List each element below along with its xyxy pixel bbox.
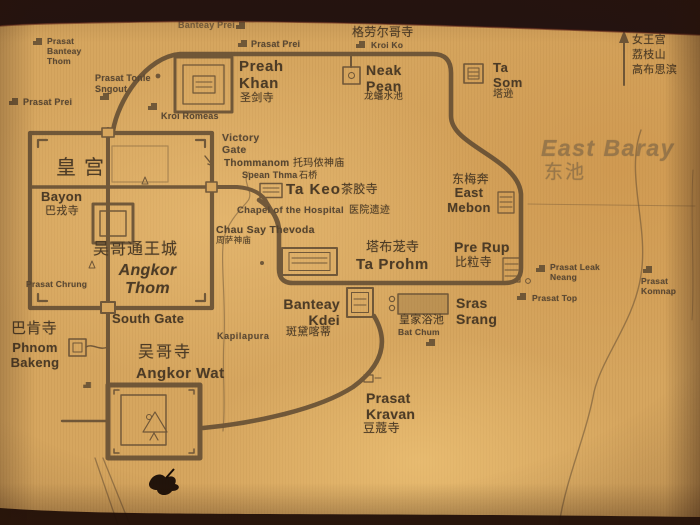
moat-tick-ne [189, 390, 194, 394]
site-icon [9, 98, 18, 105]
neak-pean-icon [343, 67, 360, 84]
label-direction-banteay-srei: 女王宫 [632, 34, 666, 46]
label-preah-khan-en: Preah Khan [239, 59, 284, 93]
site-icon [238, 40, 247, 47]
river-east [559, 130, 643, 525]
site-icon [33, 38, 42, 45]
dot-leak-neang [526, 279, 531, 284]
label-chapel-zh: 医院遗迹 [349, 205, 390, 216]
label-prasat-top: Prasat Top [532, 293, 577, 303]
banteay-kdei-lines [354, 299, 366, 305]
label-thommanom-en: Thommanom [224, 158, 289, 169]
label-ta-som-en: Ta Som [493, 61, 523, 90]
label-spean-thma-en: Spean Thma [242, 170, 298, 181]
phnom-bakeng-inner [73, 343, 82, 352]
label-pre-rup-en: Pre Rup [454, 240, 510, 256]
site-icon [236, 22, 245, 29]
site-icon [356, 41, 365, 48]
label-ta-keo-zh: 茶胶寺 [341, 183, 378, 196]
site-icon [643, 266, 652, 273]
bayon-inner [100, 211, 126, 236]
label-banteay-kdei-en: Banteay Kdei [270, 297, 340, 328]
preah-khan-temple-lines [196, 82, 212, 87]
label-prasat-banteay-thom: Prasat Banteay Thom [47, 36, 81, 67]
moat-tick-se [189, 449, 194, 453]
label-angkor-wat-zh: 吴哥寺 [138, 344, 192, 362]
moat-tick-sw [114, 449, 119, 453]
baray-line [528, 204, 695, 206]
royal-palace-enclosure [112, 146, 168, 182]
direction-arrow-head [619, 30, 629, 43]
ta-som-lines [469, 72, 478, 76]
label-angkor-wat-en: Angkor Wat [136, 366, 225, 383]
site-icon [536, 265, 545, 272]
label-prasat-prei-west: Prasat Prei [23, 97, 72, 108]
label-sras-srang-zh: 皇家浴池 [399, 314, 444, 326]
sras-srang-pond [398, 294, 448, 314]
label-ta-som-zh: 塔逊 [493, 89, 514, 100]
label-pre-rup-zh: 比粒寺 [455, 256, 492, 269]
label-prasat-prei-north: Prasat Prei [251, 39, 300, 50]
label-angkor-thom-en: Angkor Thom [110, 262, 185, 298]
label-direction-kbal-spean: 高布思滨 [632, 64, 677, 76]
sras-srang-mark-1 [389, 296, 394, 301]
label-prasat-tonle-sngout: Prasat Tonle Sngout [95, 73, 151, 95]
label-victory-gate: Victory Gate [222, 133, 260, 157]
river-far-east [692, 170, 693, 320]
label-neak-pean-en: Neak Pean [366, 63, 402, 94]
label-kroi-ko-zh: 格劳尔哥寺 [352, 26, 414, 39]
label-south-gate: South Gate [112, 312, 184, 327]
label-phnom-bakeng-zh: 巴肯寺 [11, 321, 57, 338]
label-kapilapura: Kapilapura [217, 331, 270, 342]
label-prasat-kravan-en: Prasat Kravan [366, 391, 415, 422]
label-sras-srang-en: Sras Srang [456, 296, 497, 327]
label-prasat-leak-neang: Prasat Leak Neang [550, 262, 600, 282]
label-bat-chum: Bat Chum [398, 327, 440, 337]
label-kroi-romeas: Kroi Romeas [161, 111, 219, 122]
map-photo: Banteay Prei Prasat Prei Prasat Banteay … [0, 0, 700, 525]
label-prasat-komnap: Prasat Komnap [641, 276, 676, 296]
banteay-kdei-inner [352, 293, 369, 313]
east-mebon-lines [500, 197, 512, 207]
pre-rup-lines [505, 264, 518, 276]
ta-keo-lines [263, 188, 279, 192]
label-east-mebon-en: East Mebon [441, 186, 497, 215]
mark-triangle-palace [142, 177, 148, 184]
label-chapel-en: Chapel of the Hospital [237, 206, 344, 217]
label-neak-pean-zh: 龙蟠水池 [364, 92, 403, 103]
label-ta-prohm-zh: 塔布茏寺 [366, 240, 419, 255]
preah-khan-temple-icon [193, 76, 215, 93]
dot-ta-prohm-west [260, 261, 264, 265]
label-ta-prohm-en: Ta Prohm [356, 257, 429, 274]
corner-tick-ne [196, 140, 205, 147]
dot-tonle-sngout [156, 74, 161, 79]
label-thommanom-zh: 托玛侬神庙 [293, 158, 345, 169]
label-east-baray-en: East Baray [541, 136, 675, 162]
north-gate-icon [102, 128, 114, 137]
ta-som-icon [464, 64, 483, 83]
victory-gate-icon [206, 182, 217, 192]
phnom-bakeng-path [86, 346, 108, 348]
label-spean-thma-zh: 石桥 [299, 170, 318, 180]
label-direction-phnom-kulen: 荔枝山 [632, 49, 666, 61]
angkor-wat-mark [147, 415, 152, 420]
ta-prohm-inner [289, 253, 330, 271]
label-banteay-kdei-zh: 斑黛喀蒂 [286, 326, 331, 338]
label-east-baray-zh: 东池 [544, 162, 586, 183]
moat-tick-nw [114, 390, 119, 394]
label-phnom-bakeng-en: Phnom Bakeng [4, 341, 66, 370]
ta-prohm-lines [292, 258, 327, 263]
label-prasat-chrung: Prasat Chrung [26, 279, 87, 289]
sras-srang-mark-2 [389, 305, 394, 310]
label-kroi-ko-en: Kroi Ko [371, 40, 403, 50]
site-icon [517, 293, 526, 300]
label-royal-palace-zh: 皇宫 [56, 157, 112, 179]
site-icon [148, 103, 157, 110]
corner-tick-sw [38, 294, 47, 301]
angkor-wat-moat [108, 385, 200, 458]
ta-som-inner [468, 68, 479, 79]
label-bayon-en: Bayon [41, 190, 82, 205]
label-bayon-zh: 巴戎寺 [45, 205, 79, 217]
site-icon [426, 339, 435, 346]
label-angkor-thom-zh: 吴哥通王城 [93, 241, 178, 259]
label-ta-keo-en: Ta Keo [286, 182, 341, 199]
bayon-temple [93, 204, 133, 243]
corner-tick-nw [38, 140, 47, 147]
preah-khan-inner [183, 65, 224, 104]
corner-tick-se [196, 294, 205, 301]
neak-pean-pond [349, 73, 355, 79]
phnom-bakeng-icon [69, 339, 86, 356]
site-icon [83, 382, 91, 388]
label-prasat-kravan-zh: 豆蔻寺 [363, 422, 400, 435]
label-banteay-prei: Banteay Prei [178, 20, 235, 31]
label-chau-say-zh: 周萨神庙 [216, 236, 251, 246]
label-preah-khan-zh: 圣剑寺 [240, 92, 274, 104]
mark-triangle-south [89, 261, 95, 268]
